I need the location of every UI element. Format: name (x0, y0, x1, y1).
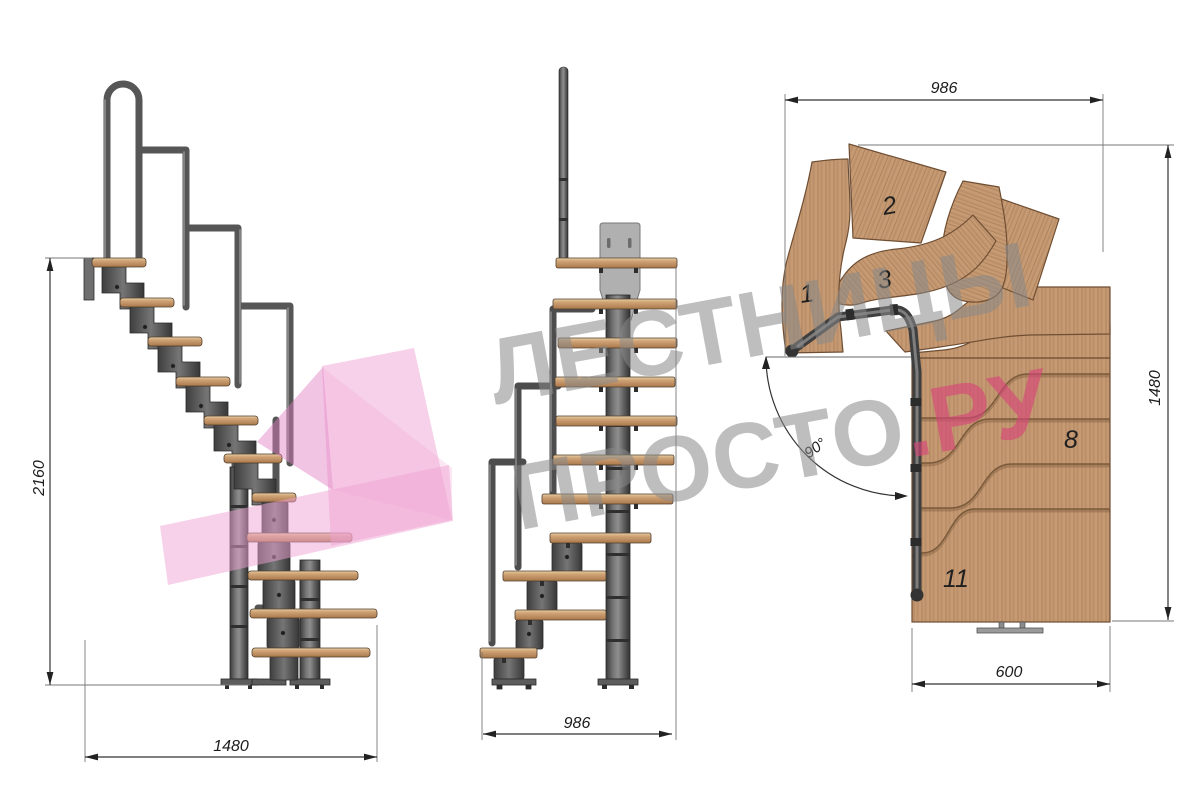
front-pole (559, 67, 568, 263)
fan-tread-2 (849, 144, 946, 243)
front-treads (480, 258, 677, 658)
dimension-plan-bottom: 600 (912, 626, 1110, 692)
drawing-page: 2160 1480 (0, 0, 1200, 807)
step-label-11: 11 (943, 565, 969, 593)
angle-label: 90° (801, 435, 829, 462)
plan-view: 1 2 3 8 11 90° (762, 80, 1174, 692)
dimension-angle: 90° (762, 356, 908, 500)
plan-bottom-label: 600 (996, 664, 1023, 681)
plan-platform (912, 358, 1110, 622)
fan-tread-1 (782, 159, 850, 353)
side-elevation-view: 2160 1480 (31, 84, 377, 762)
step-label-8: 8 (1064, 426, 1078, 454)
handrail-loop (107, 84, 139, 258)
technical-drawing: 2160 1480 (0, 0, 1200, 807)
front-elevation-view: 986 (480, 67, 677, 740)
plan-right-label: 1480 (1147, 370, 1164, 406)
side-width-label: 1480 (213, 738, 249, 755)
front-width-label: 986 (564, 715, 591, 732)
side-height-label: 2160 (31, 460, 48, 497)
plan-base-bracket (977, 622, 1043, 633)
front-column (598, 295, 638, 689)
plan-top-label: 986 (931, 80, 958, 97)
plan-straight-treads (886, 287, 1110, 358)
